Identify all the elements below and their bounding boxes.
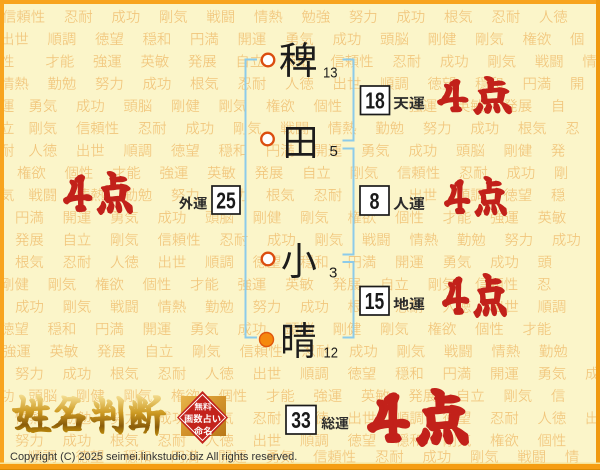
svg-text:Copyright (C) 2025 seimei.link: Copyright (C) 2025 seimei.linkstudio.biz… [10,451,297,463]
svg-text:5: 5 [330,143,338,160]
svg-text:3: 3 [329,265,337,282]
svg-text:8: 8 [370,188,380,214]
svg-text:18: 18 [365,88,385,114]
svg-text:15: 15 [365,288,385,314]
svg-text:12: 12 [324,345,339,362]
svg-text:33: 33 [291,407,311,433]
svg-text:25: 25 [216,187,236,213]
svg-text:13: 13 [323,65,338,82]
